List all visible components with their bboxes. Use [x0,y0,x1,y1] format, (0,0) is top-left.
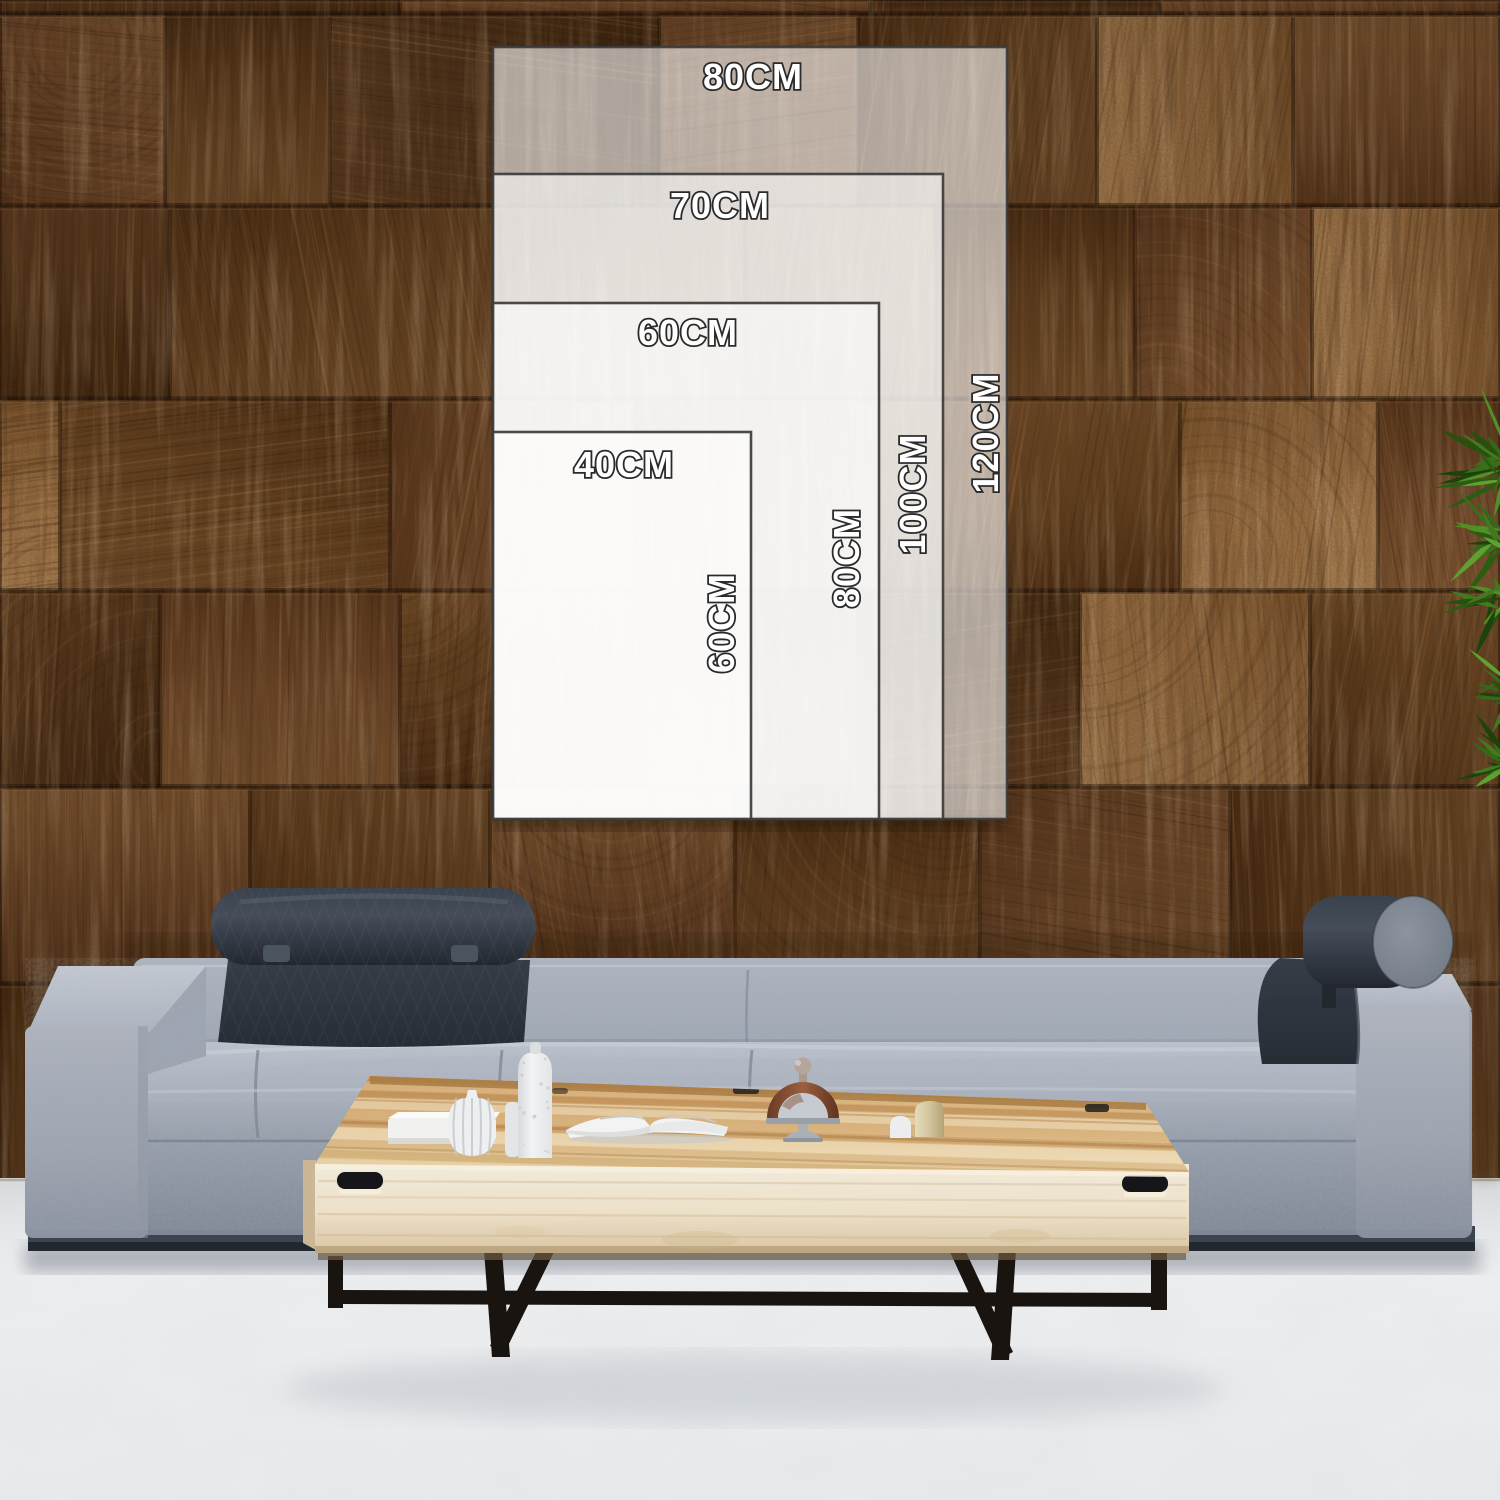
svg-text:70CM: 70CM [670,185,770,226]
svg-text:100CM: 100CM [892,433,933,554]
svg-text:40CM: 40CM [574,444,674,485]
svg-text:80CM: 80CM [826,508,867,608]
svg-text:60CM: 60CM [701,573,742,673]
svg-text:60CM: 60CM [638,312,738,353]
svg-text:80CM: 80CM [703,56,803,97]
svg-text:120CM: 120CM [965,372,1006,493]
